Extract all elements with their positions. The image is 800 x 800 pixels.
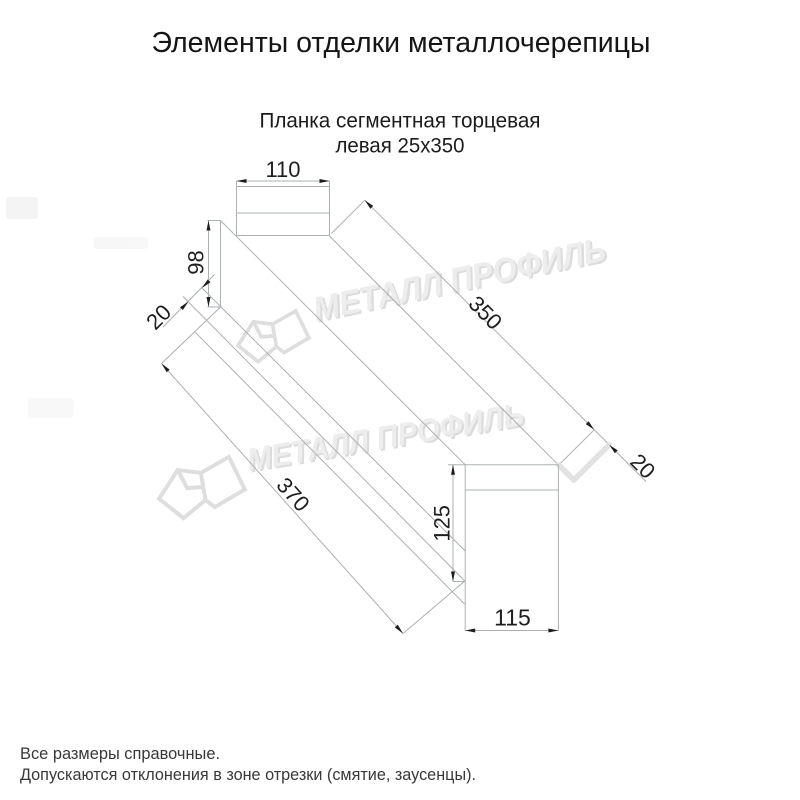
svg-text:110: 110 [265, 157, 300, 182]
svg-text:левая 25х350: левая 25х350 [336, 134, 465, 157]
svg-text:370: 370 [272, 472, 315, 516]
svg-text:МЕТАЛЛ ПРОФИЛЬ: МЕТАЛЛ ПРОФИЛЬ [310, 230, 609, 329]
svg-text:98: 98 [184, 250, 209, 274]
svg-text:Планка сегментная торцевая: Планка сегментная торцевая [260, 109, 541, 132]
svg-text:20: 20 [141, 300, 176, 335]
svg-text:Допускаются отклонения в зоне: Допускаются отклонения в зоне отрезки (с… [20, 765, 476, 784]
svg-text:Элементы отделки металлочерепи: Элементы отделки металлочерепицы [152, 27, 651, 59]
svg-text:125: 125 [430, 505, 455, 542]
svg-text:МЕТАЛЛ ПРОФИЛЬ: МЕТАЛЛ ПРОФИЛЬ [244, 396, 526, 478]
svg-text:Все размеры справочные.: Все размеры справочные. [20, 744, 220, 763]
svg-text:115: 115 [494, 605, 531, 631]
svg-text:20: 20 [625, 449, 660, 484]
